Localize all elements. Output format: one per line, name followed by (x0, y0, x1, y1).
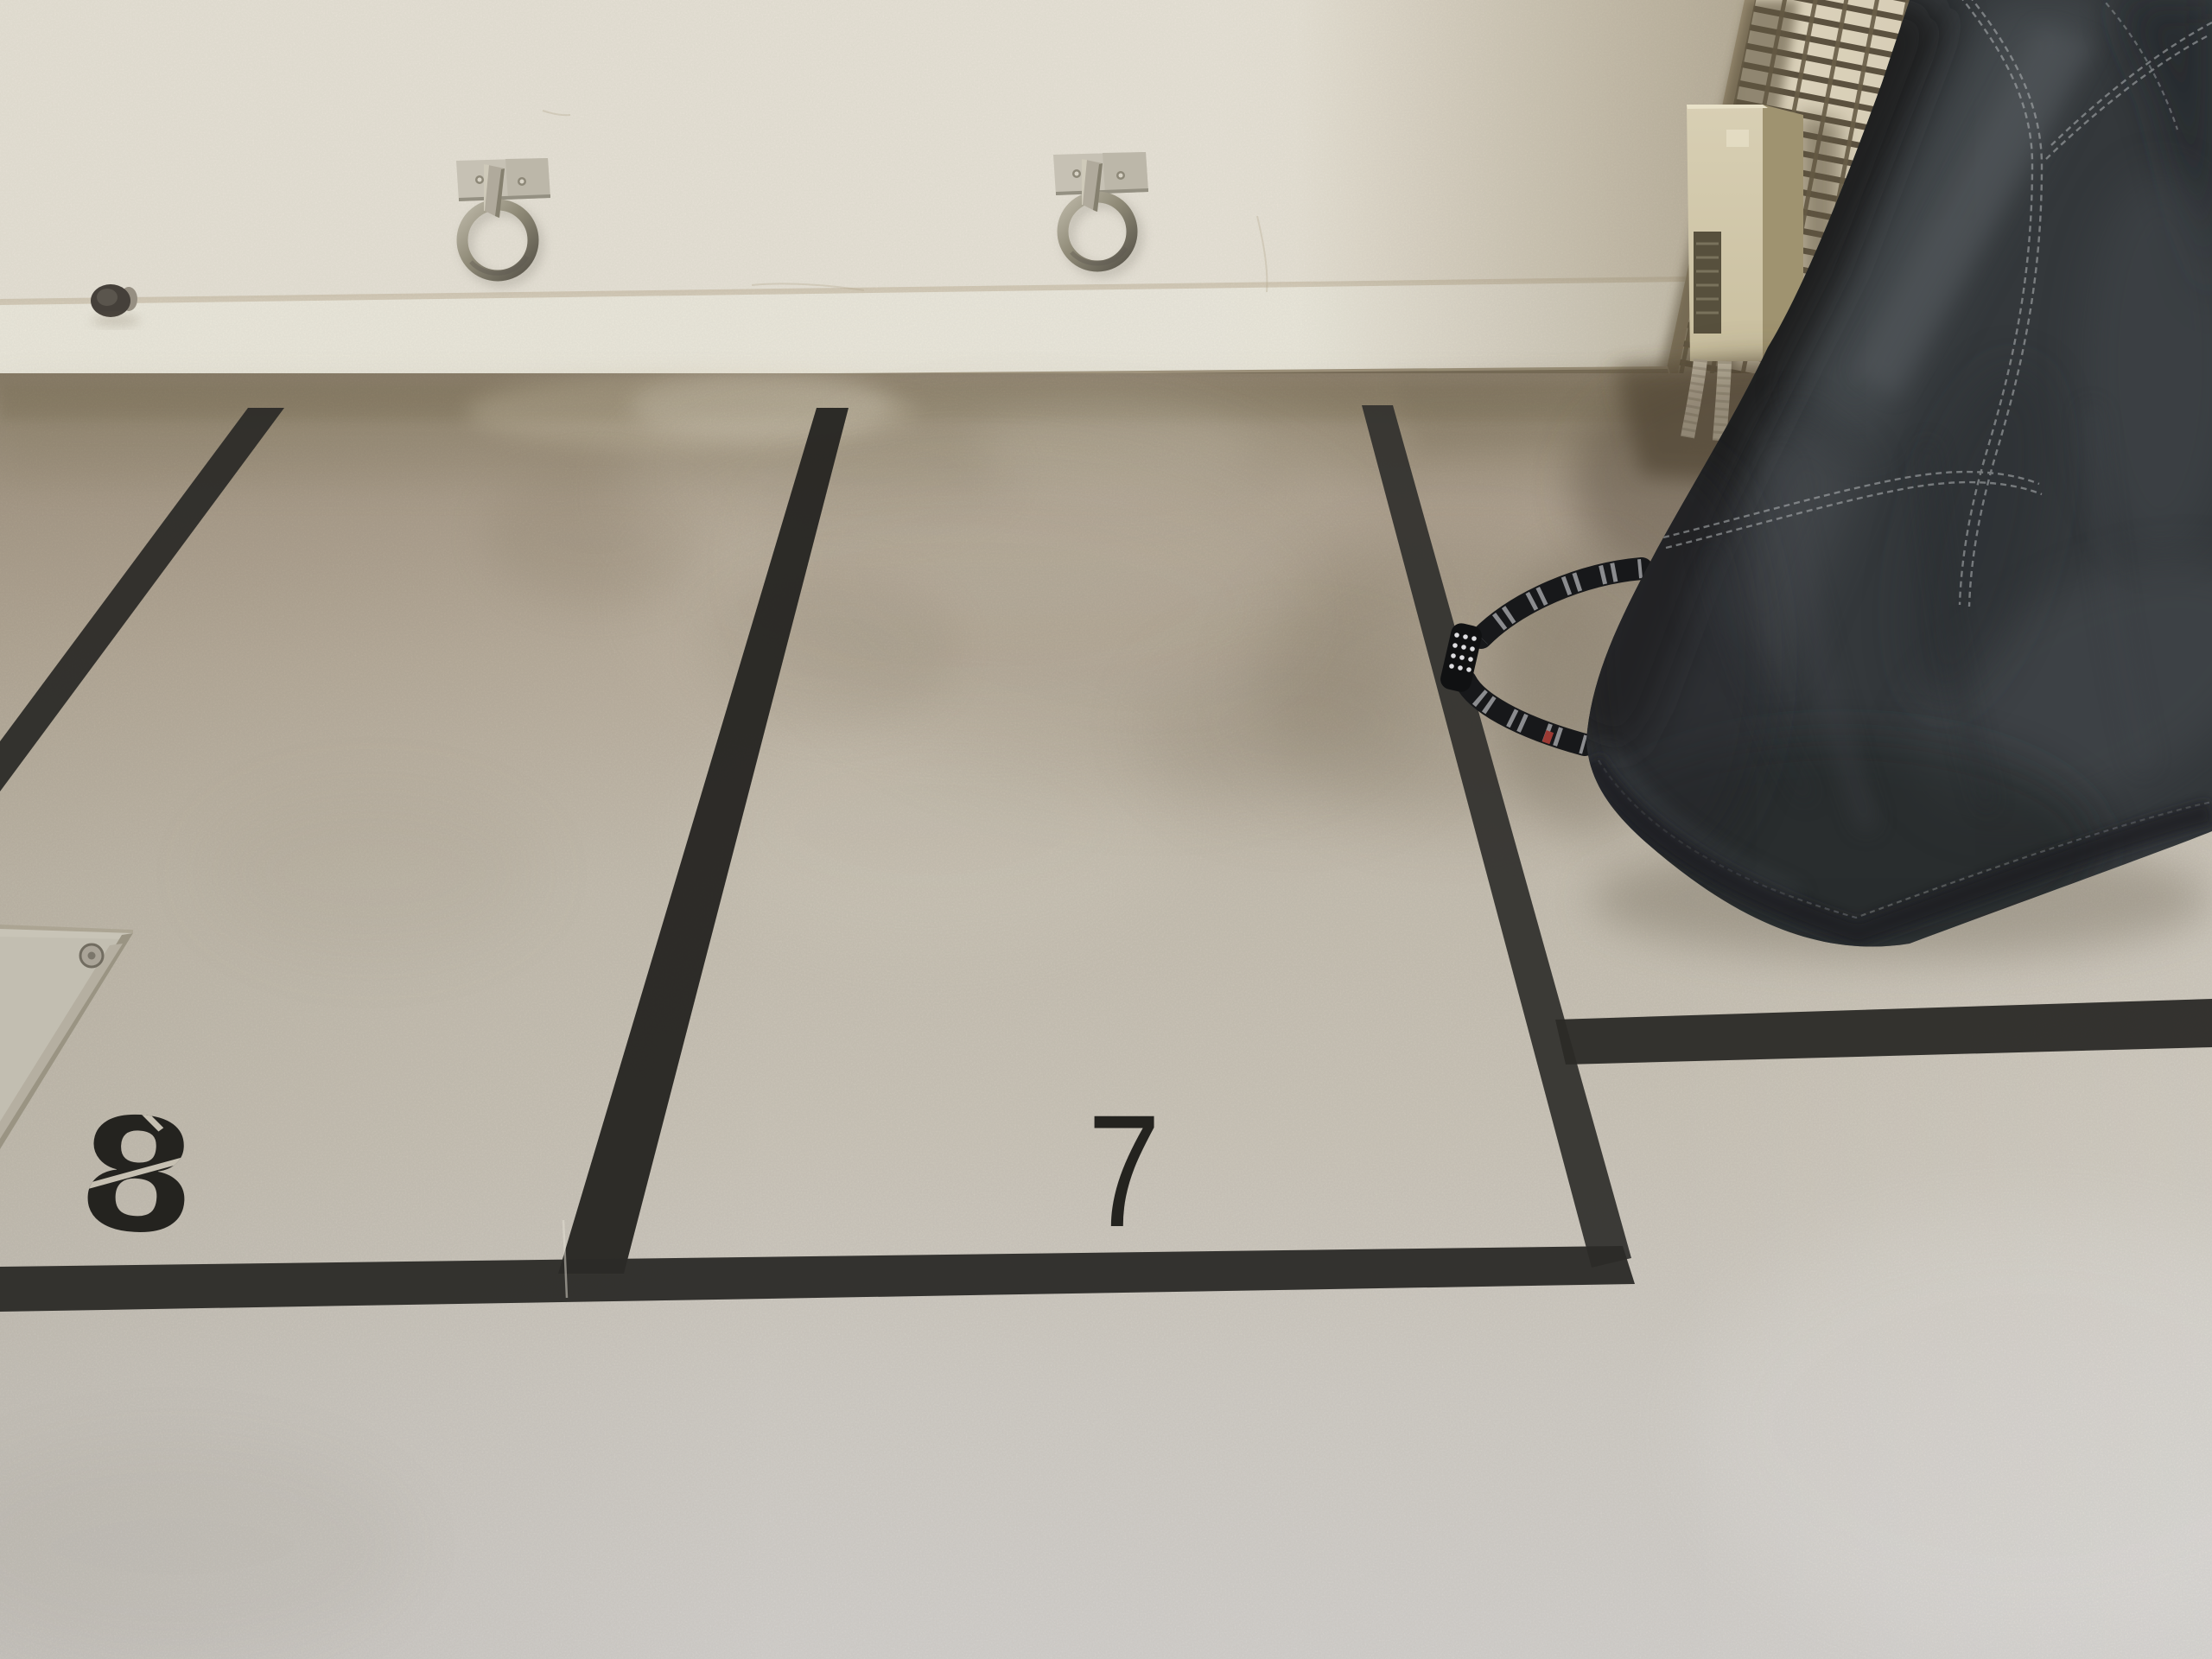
svg-text:7: 7 (1088, 1082, 1160, 1261)
